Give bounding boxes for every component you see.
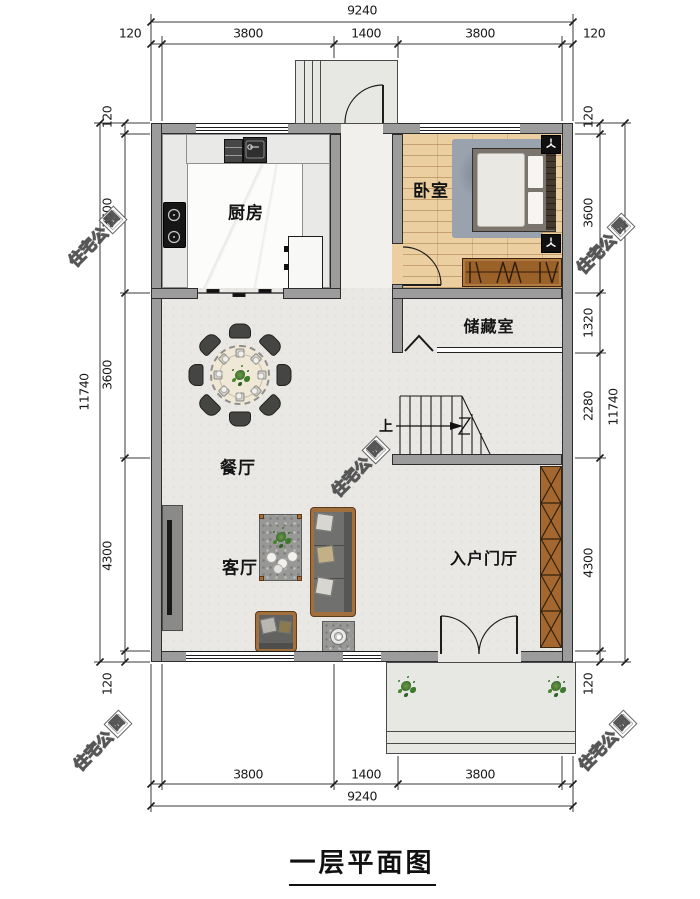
room-label-entry: 入户门厅 bbox=[450, 545, 518, 569]
shoe-cabinet-x-pattern bbox=[541, 467, 561, 647]
dim-top-seg: 3800 bbox=[465, 26, 495, 41]
stairs-up-arrow bbox=[396, 418, 470, 434]
dim-left-seg: 120 bbox=[100, 673, 115, 695]
dim-top-seg: 120 bbox=[583, 26, 605, 41]
dim-right-seg: 4300 bbox=[581, 548, 596, 578]
kitchen-sliding-door bbox=[198, 290, 283, 297]
room-label-storage: 储藏室 bbox=[463, 313, 514, 337]
room-label-dining: 餐厅 bbox=[220, 454, 256, 479]
dim-right-overall: 11740 bbox=[606, 388, 621, 425]
room-label-bedroom: 卧室 bbox=[413, 177, 449, 202]
dim-right-seg: 1320 bbox=[581, 308, 596, 338]
dim-right-seg: 120 bbox=[581, 673, 596, 695]
title-underline bbox=[289, 884, 436, 886]
dimension-lines bbox=[94, 14, 631, 812]
dim-bottom-seg: 3800 bbox=[233, 767, 263, 782]
dim-bottom-seg: 1400 bbox=[351, 767, 381, 782]
stove-burners bbox=[169, 210, 180, 243]
dim-right-seg: 2280 bbox=[581, 391, 596, 421]
bedroom-door bbox=[403, 247, 441, 285]
dim-left-seg: 3600 bbox=[100, 360, 115, 390]
dim-top-seg: 1400 bbox=[351, 26, 381, 41]
dim-right-seg: 120 bbox=[581, 106, 596, 128]
dim-top-overall: 9240 bbox=[347, 3, 377, 18]
wardrobe-hangers bbox=[466, 262, 558, 283]
dim-left-seg: 120 bbox=[100, 106, 115, 128]
room-label-kitchen: 厨房 bbox=[228, 199, 264, 224]
dim-top-seg: 3800 bbox=[233, 26, 263, 41]
dim-top-seg: 120 bbox=[119, 26, 141, 41]
stairs bbox=[400, 396, 490, 454]
stairs-up-label: 上 bbox=[379, 416, 393, 436]
back-door bbox=[345, 85, 383, 123]
fan-glyphs bbox=[547, 139, 556, 247]
dim-right-seg: 3600 bbox=[581, 198, 596, 228]
entry-double-door bbox=[441, 616, 517, 654]
dimension-ticks bbox=[97, 19, 629, 810]
dim-left-seg: 4300 bbox=[100, 541, 115, 571]
dim-bottom-overall: 9240 bbox=[347, 789, 377, 804]
sink-details bbox=[246, 141, 264, 158]
dim-bottom-seg: 3800 bbox=[465, 767, 495, 782]
dim-left-overall: 11740 bbox=[77, 373, 92, 410]
page-title: 一层平面图 bbox=[289, 843, 434, 880]
storage-folding-door bbox=[405, 336, 433, 351]
floor-plan-canvas: 厨房 卧室 储藏室 餐厅 客厅 入户门厅 上 9240 120 3800 140… bbox=[0, 0, 700, 899]
room-label-living: 客厅 bbox=[222, 554, 258, 579]
